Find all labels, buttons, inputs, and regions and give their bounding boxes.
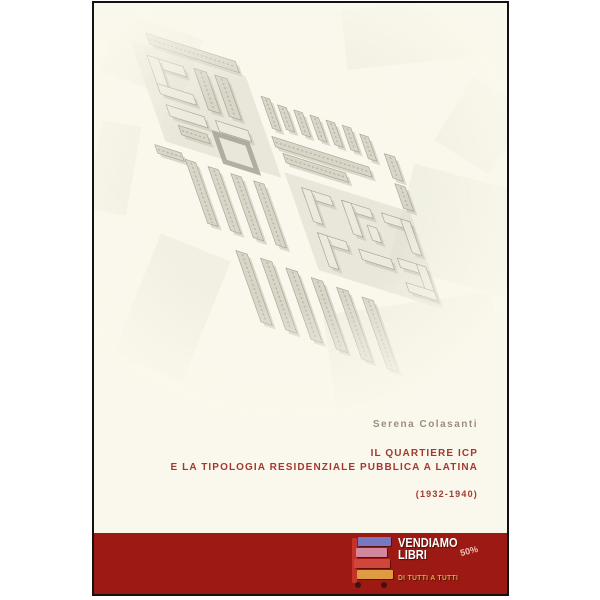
publisher-name-line-2: LIBRI: [398, 549, 458, 561]
author-name: Serena Colasanti: [373, 419, 478, 430]
cart-wheel: [381, 582, 387, 588]
book-spine: [354, 559, 390, 568]
book-cover: Serena Colasanti IL QUARTIERE ICP E LA T…: [92, 1, 509, 596]
title-line-2: E LA TIPOLOGIA RESIDENZIALE PUBBLICA A L…: [171, 461, 478, 475]
title-line-1: IL QUARTIERE ICP: [171, 447, 478, 461]
publisher-band: VENDIAMO LIBRI DI TUTTI A TUTTI 50%: [94, 533, 507, 594]
book-spine: [357, 570, 393, 579]
site-plan-illustration: [94, 3, 507, 433]
publisher-logo: VENDIAMO LIBRI: [398, 537, 468, 560]
book-spine: [358, 537, 391, 546]
cart-wheel: [355, 582, 361, 588]
publisher-tagline: DI TUTTI A TUTTI: [398, 575, 458, 582]
book-spine: [356, 548, 387, 557]
book-title: IL QUARTIERE ICP E LA TIPOLOGIA RESIDENZ…: [171, 447, 478, 475]
title-years: (1932-1940): [416, 489, 478, 499]
book-cart-icon: [352, 537, 398, 590]
site-plan-fade-overlay: [94, 3, 507, 433]
